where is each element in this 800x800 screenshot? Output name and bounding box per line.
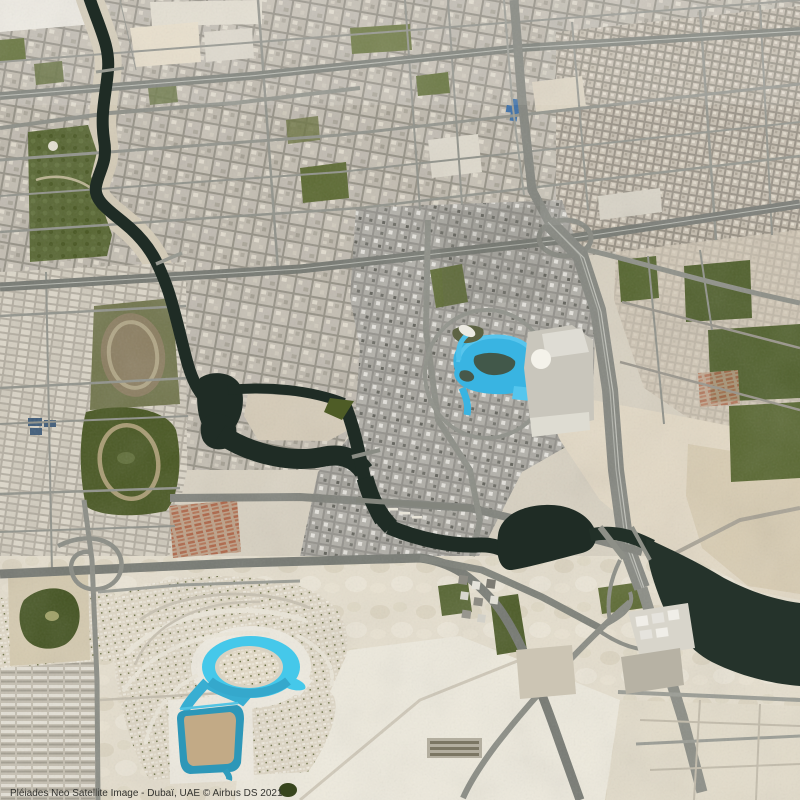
svg-text:Pléiades Neo Satellite Image -: Pléiades Neo Satellite Image - Dubaï, UA… (10, 788, 283, 799)
